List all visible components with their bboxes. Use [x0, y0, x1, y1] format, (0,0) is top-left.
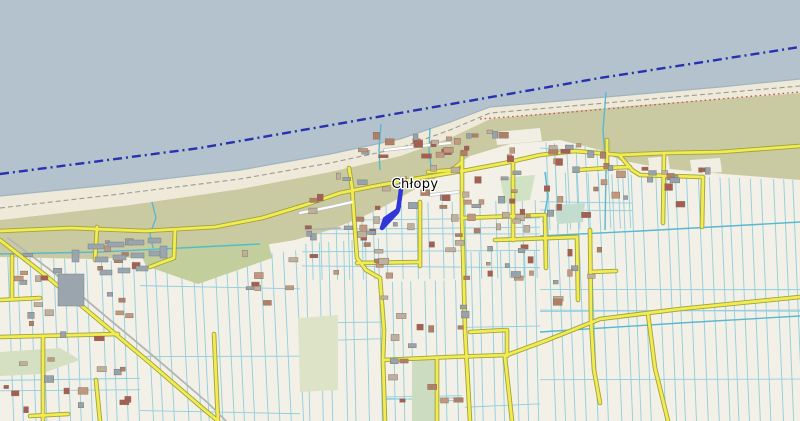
map-viewport[interactable]: Chłopy: [0, 0, 800, 421]
map-canvas: Chłopy: [0, 0, 800, 421]
map-layers: [0, 0, 800, 421]
place-label-chlopy: Chłopy: [392, 177, 439, 192]
